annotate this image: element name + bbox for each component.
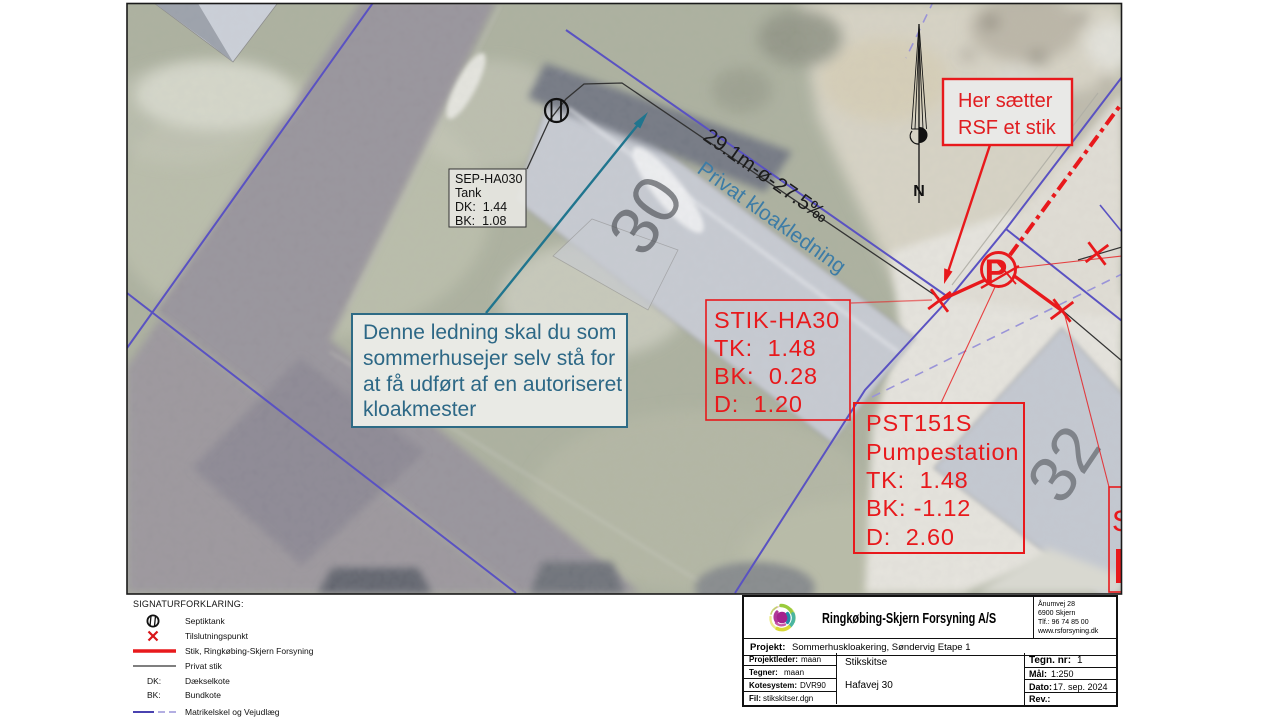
svg-text:Septiktank: Septiktank	[185, 616, 225, 626]
svg-text:SEP-HA030: SEP-HA030	[455, 172, 522, 186]
svg-text:TK: 1.48: TK: 1.48	[866, 467, 969, 493]
svg-text:PST151S: PST151S	[866, 410, 972, 436]
svg-text:STIK-HA30: STIK-HA30	[714, 307, 840, 333]
svg-text:BK: -1.12: BK: -1.12	[866, 495, 971, 521]
svg-text:RSF et stik: RSF et stik	[958, 117, 1057, 139]
svg-text:DK:: DK:	[147, 676, 161, 686]
svg-text:DK: 1.44: DK: 1.44	[455, 200, 507, 214]
svg-text:D: 1.20: D: 1.20	[714, 391, 803, 417]
svg-text:BK: 0.28: BK: 0.28	[714, 363, 818, 389]
svg-text:Tank: Tank	[455, 186, 482, 200]
svg-text:N: N	[913, 183, 925, 200]
svg-text:Matrikelskel og Vejudlæg: Matrikelskel og Vejudlæg	[185, 707, 280, 717]
svg-text:P: P	[985, 253, 1008, 291]
svg-text:Her sætter: Her sætter	[958, 90, 1053, 112]
svg-text:Tilslutningspunkt: Tilslutningspunkt	[185, 631, 249, 641]
svg-text:Privat stik: Privat stik	[185, 661, 223, 671]
svg-text:SIGNATURFORKLARING:: SIGNATURFORKLARING:	[133, 599, 244, 609]
svg-text:TK: 1.48: TK: 1.48	[714, 335, 817, 361]
svg-text:Stik, Ringkøbing-Skjern Forsyn: Stik, Ringkøbing-Skjern Forsyning	[185, 646, 314, 656]
svg-text:BK:: BK:	[147, 690, 161, 700]
svg-text:Pumpestation: Pumpestation	[866, 439, 1019, 465]
svg-text:BK: 1.08: BK: 1.08	[455, 214, 506, 228]
svg-text:Bundkote: Bundkote	[185, 690, 221, 700]
svg-text:Dækselkote: Dækselkote	[185, 676, 230, 686]
svg-text:D: 2.60: D: 2.60	[866, 524, 955, 550]
